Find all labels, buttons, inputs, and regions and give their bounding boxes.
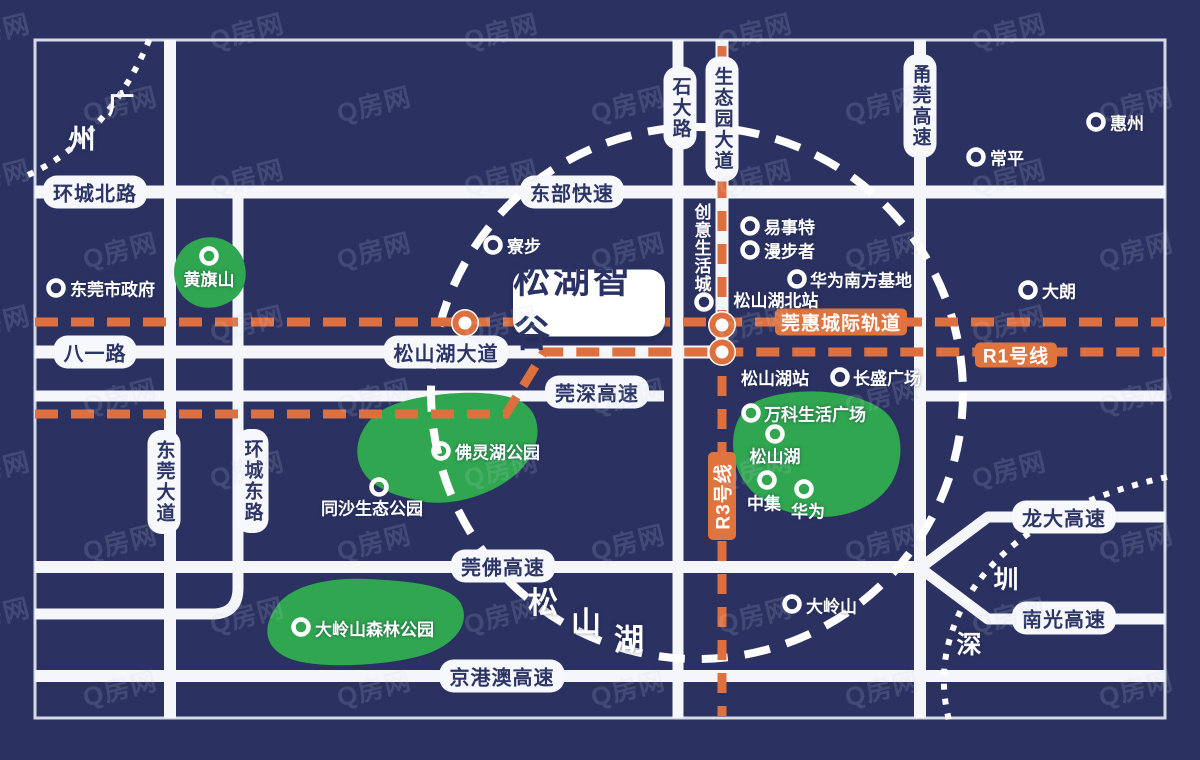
huawei-south-base-label: 华为南方基地 (810, 267, 912, 292)
shenzhen-char-2: 深 (956, 625, 981, 661)
r1-line-badge-label: R1号线 (983, 342, 1049, 369)
vanke-life-plaza-label: 万科生活广场 (764, 401, 866, 426)
chuangyi-shenghuocheng-label: 创意生活城 (689, 203, 714, 293)
huangqishan-label: 黄旗山 (184, 266, 235, 291)
yongguan-expwy-label: 甬莞高速 (904, 54, 937, 158)
dalang-label: 大朗 (1042, 278, 1076, 303)
manbuzhe-label: 漫步者 (764, 238, 815, 263)
dongguan-avenue-label: 东莞大道 (148, 430, 181, 534)
liaobu-label: 寮步 (507, 233, 541, 258)
bayi-road-label: 八一路 (54, 336, 137, 369)
changsheng-plaza-label: 长盛广场 (853, 365, 921, 390)
songshanhu-poi-label: 松山湖 (750, 443, 801, 468)
r3-line-badge-label: R3号线 (709, 463, 736, 529)
songshanhu-char-2: 山 (571, 598, 601, 642)
nanguang-expwy-label: 南光高速 (1012, 602, 1116, 635)
guangzhou-char-1: 广 (108, 83, 135, 122)
zhongji-label: 中集 (747, 490, 781, 515)
huancheng-east-label: 环城东路 (236, 429, 269, 533)
dalingshan-label: 大岭山 (806, 593, 857, 618)
huawei-label: 华为 (791, 498, 825, 523)
r1-line-badge: R1号线 (975, 343, 1057, 368)
huizhou-label: 惠州 (1110, 110, 1144, 135)
guanhui-rail-badge: 莞惠城际轨道 (775, 309, 907, 336)
project-title-box: 松湖智谷 (513, 270, 665, 337)
jinggangao-expwy-label: 京港澳高速 (440, 660, 565, 693)
songshanhu-char-1: 松 (528, 578, 558, 622)
guanhui-rail-badge-label: 莞惠城际轨道 (781, 309, 901, 336)
songshanhu-char-3: 湖 (614, 615, 644, 659)
map-labels-layer: 松湖智谷 环城北路东部快速八一路松山湖大道莞深高速莞佛高速京港澳高速龙大高速南光… (0, 0, 1200, 760)
changping-label: 常平 (990, 145, 1024, 170)
shida-road-label: 石大路 (664, 67, 697, 150)
guangzhou-char-2: 州 (69, 118, 96, 157)
songshanhu-north-station: 松山湖北站 (734, 287, 819, 312)
folinghu-park-poi-label: 佛灵湖公园 (455, 439, 540, 464)
huancheng-north-label: 环城北路 (43, 176, 147, 209)
guanshen-expwy-label: 莞深高速 (545, 376, 649, 409)
yishite-label: 易事特 (764, 214, 815, 239)
dongbu-express-label: 东部快速 (520, 176, 624, 209)
dalingshan-forest-park-label: 大岭山森林公园 (315, 616, 434, 641)
tongsha-eco-park-label: 同沙生态公园 (321, 495, 423, 520)
project-title: 松湖智谷 (513, 249, 665, 357)
songshanhu-avenue-label: 松山湖大道 (384, 336, 509, 369)
longda-expwy-label: 龙大高速 (1012, 501, 1116, 534)
location-map: 松湖智谷 环城北路东部快速八一路松山湖大道莞深高速莞佛高速京港澳高速龙大高速南光… (0, 0, 1200, 760)
shengtaiyuan-avenue-label: 生态园大道 (706, 57, 739, 182)
shenzhen-char-1: 圳 (993, 560, 1018, 596)
dongguan-government-label: 东莞市政府 (70, 276, 155, 301)
r3-line-badge: R3号线 (708, 452, 736, 540)
songshanhu-station: 松山湖站 (741, 365, 809, 390)
